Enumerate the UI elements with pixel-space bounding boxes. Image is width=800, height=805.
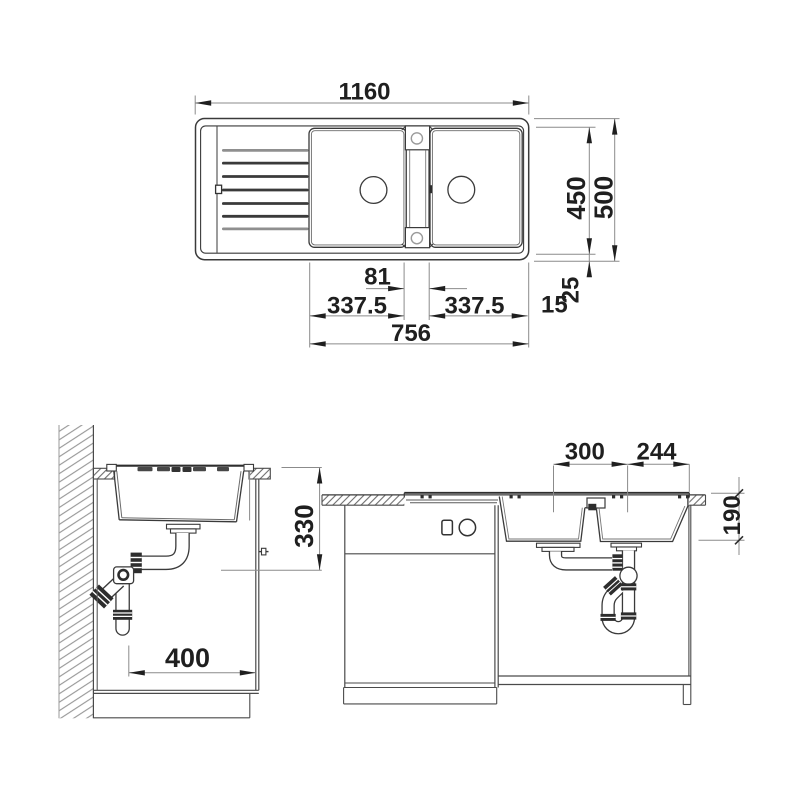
svg-text:81: 81 (364, 264, 391, 291)
svg-text:756: 756 (391, 320, 431, 347)
svg-text:337.5: 337.5 (327, 293, 387, 320)
svg-text:244: 244 (636, 439, 677, 466)
svg-text:500: 500 (589, 176, 619, 219)
svg-text:15: 15 (541, 292, 568, 319)
svg-text:450: 450 (561, 176, 591, 219)
svg-text:400: 400 (165, 643, 210, 673)
svg-text:190: 190 (719, 495, 746, 535)
svg-text:337.5: 337.5 (444, 293, 504, 320)
svg-text:1160: 1160 (338, 79, 390, 106)
svg-text:330: 330 (289, 504, 319, 547)
svg-text:300: 300 (565, 439, 605, 466)
